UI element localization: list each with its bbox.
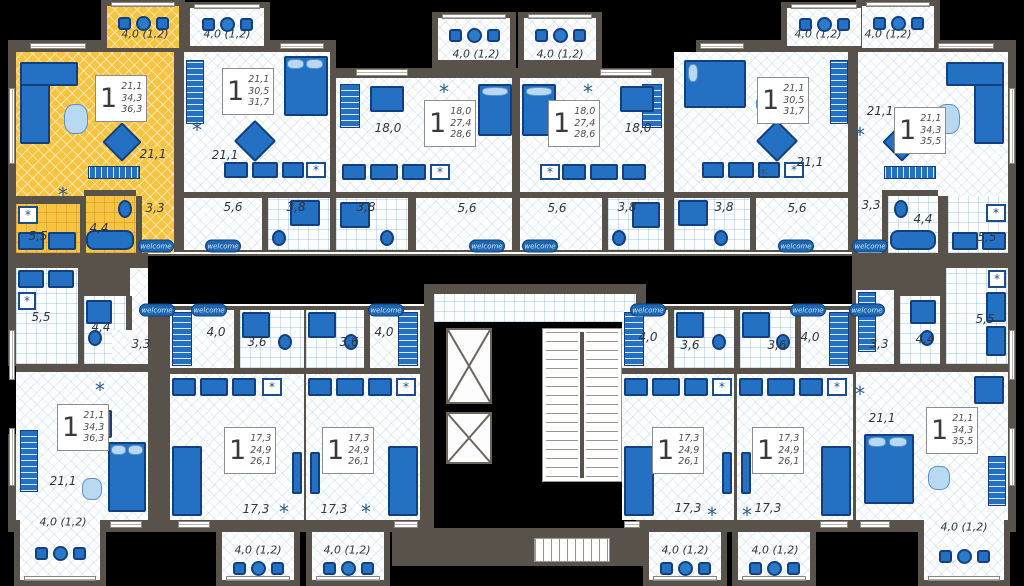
balcony-furniture [789,10,859,38]
balcony-table-icon [817,17,832,32]
staircase [542,328,622,482]
balcony-chair-icon [535,29,548,42]
entrance-steps [534,538,610,562]
balcony-glazing [111,2,175,7]
apartment-region-top-left-selected[interactable] [16,52,174,253]
window [110,521,142,528]
balcony-chair-icon [939,550,952,563]
window [860,521,890,528]
balcony-chair-icon [911,17,924,30]
apartment-region-bottom-right[interactable] [856,268,1008,520]
window [938,43,994,49]
balcony-furniture [314,556,382,580]
window [9,88,15,164]
balcony-furniture [926,542,1002,570]
balcony-table-icon [53,546,68,561]
apartment-region-top-4[interactable] [520,78,664,250]
balcony-chair-icon [698,562,711,575]
balcony-chair-icon [799,18,812,31]
core-hall [434,294,636,322]
window [624,521,640,528]
window [9,330,15,380]
balcony-chair-icon [240,18,253,31]
balcony-furniture [740,556,808,580]
balcony-table-icon [678,561,693,576]
balcony-table-icon [467,28,482,43]
balcony-chair-icon [118,17,131,30]
balcony-chair-icon [977,550,990,563]
balcony-furniture [526,20,594,50]
apartment-region-bottom-5[interactable] [737,310,853,520]
balcony-table-icon [220,17,235,32]
balcony-table-icon [341,561,356,576]
balcony-glazing [442,14,506,19]
elevator-icon [446,328,492,404]
balcony-chair-icon [837,18,850,31]
apartment-region-bottom-3[interactable] [306,310,420,520]
apartment-region-top-right[interactable] [858,52,1008,253]
window [600,69,652,76]
elevator-icon [446,412,492,464]
balcony-chair-icon [361,562,374,575]
balcony-chair-icon [449,29,462,42]
balcony-chair-icon [660,562,673,575]
balcony-furniture [109,8,177,38]
window [394,521,418,528]
balcony-chair-icon [487,29,500,42]
window [356,69,408,76]
balcony-glazing [928,576,1000,581]
window [1009,330,1015,380]
balcony-chair-icon [323,562,336,575]
balcony-area-label: 4,0 (1,2) [234,544,281,557]
balcony-table-icon [136,16,151,31]
balcony-area-label: 4,0 (1,2) [323,544,370,557]
balcony-glazing [528,14,592,19]
apartment-region-bottom-2[interactable] [170,310,304,520]
balcony-furniture [192,10,262,38]
window [820,521,848,528]
balcony-furniture [440,20,508,50]
window [9,428,15,486]
balcony-glazing [24,576,96,581]
balcony-table-icon [553,28,568,43]
balcony-chair-icon [202,18,215,31]
balcony-table-icon [767,561,782,576]
apartment-region-bottom-left[interactable] [16,268,148,520]
window [1009,428,1015,486]
balcony-chair-icon [35,547,48,560]
balcony-chair-icon [573,29,586,42]
balcony-furniture [651,556,719,580]
balcony-chair-icon [271,562,284,575]
balcony-glazing [194,4,260,9]
apartment-region-top-5[interactable] [674,52,848,250]
balcony-area-label: 4,0 (1,2) [661,544,708,557]
balcony-area-label: 4,0 (1,2) [940,521,987,534]
facade-recess [336,40,696,68]
balcony-furniture [864,8,932,38]
window [30,43,86,49]
window [1009,88,1015,164]
balcony-chair-icon [156,17,169,30]
window [178,521,210,528]
apartment-region-bottom-4[interactable] [622,310,734,520]
apartment-region-top-3[interactable] [336,78,512,250]
balcony-area-label: 4,0 (1,2) [751,544,798,557]
balcony-chair-icon [873,17,886,30]
floor-plan: * 21,1 3,3 4,4 5,5 4,0 (1,2) * 1 21,134,… [0,0,1024,586]
balcony-furniture [22,538,98,568]
window [700,43,744,49]
balcony-chair-icon [233,562,246,575]
apartment-region-top-2[interactable] [184,52,330,250]
balcony-table-icon [891,16,906,31]
balcony-chair-icon [787,562,800,575]
window [280,43,324,49]
balcony-chair-icon [749,562,762,575]
balcony-table-icon [957,549,972,564]
balcony-furniture [224,556,292,580]
balcony-chair-icon [73,547,86,560]
balcony-glazing [791,4,857,9]
balcony-glazing [866,2,930,7]
balcony-table-icon [251,561,266,576]
